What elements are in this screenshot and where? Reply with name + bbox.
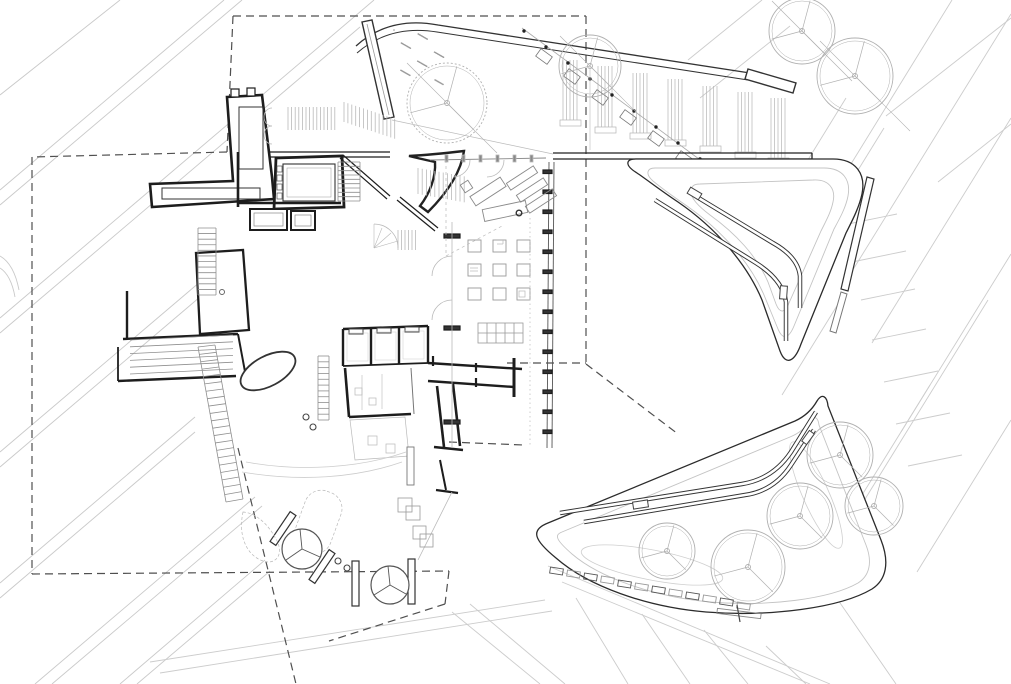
street-hatching-lower-item	[576, 598, 628, 684]
property-line-dashed-item	[238, 448, 296, 684]
street-hatching-left-item	[120, 560, 265, 684]
street-hatching-lower-item	[704, 630, 748, 684]
shaft-wall	[437, 386, 444, 447]
pedestal	[468, 264, 481, 276]
reception-bench	[506, 166, 537, 190]
cell-interior	[403, 331, 424, 359]
service-room	[291, 211, 315, 230]
plaza-furniture	[413, 526, 426, 539]
street-hatching-lower-item	[150, 600, 545, 662]
door-swing-arc	[432, 300, 452, 320]
mullion	[543, 330, 552, 334]
mullion	[543, 310, 552, 314]
tree	[769, 0, 852, 81]
tree	[407, 63, 497, 153]
bollard	[344, 565, 350, 571]
curtain-wall	[547, 162, 549, 448]
colonnade-columns-item	[630, 73, 651, 139]
street-hatching-right-item	[917, 420, 1011, 572]
tree	[559, 35, 640, 116]
mullion	[543, 390, 552, 394]
street-hatching-lower-item	[452, 612, 540, 684]
revolving-doors	[282, 529, 409, 604]
desk-grommet	[516, 210, 522, 216]
stair-hall-wall	[118, 376, 236, 381]
colonnade-columns-item	[700, 86, 721, 152]
glass-tick	[513, 155, 516, 162]
street-hatching-left-item	[0, 259, 227, 452]
fan-stair-rib	[374, 228, 382, 248]
shaft-cap	[436, 490, 458, 493]
paver	[550, 567, 564, 575]
stair-long	[198, 345, 243, 502]
mullion	[543, 430, 552, 434]
mullion	[543, 210, 552, 214]
display-table	[478, 323, 523, 343]
street-hatching-left	[0, 0, 374, 684]
planter-berm-east	[628, 159, 874, 360]
bollard	[335, 558, 341, 564]
pedestal	[493, 264, 506, 276]
service-room	[250, 209, 287, 230]
l-shaped-room	[150, 95, 274, 207]
fixture	[355, 388, 362, 395]
fixture	[386, 444, 395, 453]
parking-tick	[852, 251, 906, 262]
street-hatching-upper-right	[688, 0, 1011, 182]
mullion	[543, 290, 552, 294]
plaza-furniture	[398, 498, 412, 512]
street-hatching-lower-item	[766, 646, 806, 684]
stair-hatch	[398, 230, 416, 250]
room-wall	[345, 368, 349, 417]
mullion	[543, 370, 552, 374]
stair-west	[318, 356, 329, 420]
street-hatching-right-item	[862, 300, 988, 504]
cell-interior	[347, 333, 368, 361]
planter-berm-south-base	[537, 396, 886, 613]
pedestal	[468, 288, 481, 300]
landing-room	[196, 250, 249, 334]
street-hatching-lower-item	[160, 611, 552, 673]
mullion	[543, 170, 552, 174]
curtain-wall	[552, 162, 554, 448]
street-hatching-right-item	[846, 14, 1011, 281]
mullion	[543, 230, 552, 234]
colonnade-columns-item	[595, 66, 616, 133]
gravel-stipple	[393, 29, 444, 85]
room-wall	[349, 414, 411, 417]
door-swing-arc	[432, 256, 452, 276]
glass-tick	[530, 155, 533, 162]
site-plan-canvas	[0, 0, 1011, 684]
link-wall	[428, 381, 514, 387]
elevator-cells-bottom	[343, 363, 428, 366]
street-hatching-lower-item	[838, 600, 896, 684]
wall-gate	[780, 286, 788, 299]
room-wall-light	[411, 368, 414, 414]
colonnade-columns-item	[768, 98, 789, 164]
street-hatching-left-item	[0, 0, 242, 205]
property-line-dashed-item	[329, 604, 445, 641]
street-corner-curve	[0, 256, 19, 290]
parking-tick	[896, 413, 950, 424]
mullion	[543, 270, 552, 274]
property-line-dashed-item	[445, 571, 449, 604]
wall-prong	[231, 89, 239, 97]
promenade-handrail-bar	[745, 69, 796, 93]
wall-prong	[247, 88, 255, 96]
zone-boundary	[446, 226, 502, 256]
street-hatching-lower-item	[470, 604, 565, 684]
berm-outline	[537, 396, 886, 613]
pedestal	[493, 240, 506, 252]
plaza-path	[246, 452, 406, 467]
trees-upper	[407, 0, 910, 153]
pedestal	[517, 264, 530, 276]
property-line-dashed-item	[586, 364, 678, 434]
pedestal-detail	[519, 291, 525, 297]
bollard	[303, 414, 309, 420]
ramp-treads	[130, 335, 233, 374]
street-hatching-upper-right-item	[688, 0, 762, 60]
parking-tick	[861, 289, 915, 300]
pedestal	[468, 240, 481, 252]
diagonal-wall	[343, 155, 390, 196]
terrace-edge	[392, 120, 553, 154]
fixture	[369, 398, 376, 405]
tree	[817, 38, 910, 131]
street-hatching-upper-right-item	[938, 124, 1011, 182]
street-corner-curve	[0, 268, 15, 297]
stair-hatch	[288, 107, 335, 130]
diagonal-wall	[340, 158, 387, 199]
cell-interior	[375, 332, 396, 360]
glass-tick	[462, 155, 465, 162]
site-plan-drawing	[0, 0, 1011, 684]
tilted-screen-inner	[367, 24, 389, 115]
promenade-curve-inner	[357, 30, 748, 80]
mullion	[543, 350, 552, 354]
reception-desk	[460, 180, 472, 192]
parking-tick	[884, 371, 938, 382]
glass-tick	[479, 155, 482, 162]
plaza-furniture	[406, 506, 420, 520]
glass-tick	[496, 155, 499, 162]
street-hatching-left-item	[52, 506, 262, 684]
mullion	[543, 410, 552, 414]
door-swing-arc	[487, 160, 504, 177]
bench-bar	[407, 447, 414, 485]
reception-desk	[470, 177, 506, 206]
colonnade-columns-item	[735, 92, 756, 158]
glass-tick	[445, 155, 448, 162]
mullion	[543, 250, 552, 254]
street-hatching-left-item	[0, 0, 224, 190]
street-hatching-upper-right-item	[886, 18, 1011, 116]
street-hatching-left-item	[0, 0, 120, 95]
pedestal	[517, 240, 530, 252]
shaft-foot	[434, 447, 463, 450]
pond-ellipse	[234, 344, 301, 399]
plaza-path	[242, 462, 402, 477]
street-hatching-left-item	[0, 274, 227, 467]
street-hatching-right-item	[872, 118, 1011, 343]
fixture	[368, 436, 377, 445]
shaft-leg	[440, 460, 446, 490]
pedestal	[493, 288, 506, 300]
bollard	[310, 424, 316, 430]
parking-tick	[908, 455, 962, 466]
stairs	[130, 162, 360, 502]
door-flank-wall	[352, 561, 359, 606]
stair-hall-wall	[123, 334, 238, 339]
shaft-wall	[453, 384, 460, 446]
street-hatching-left-item	[137, 571, 270, 684]
stair-step-glyph	[536, 49, 553, 65]
plaza-furniture	[420, 534, 433, 547]
